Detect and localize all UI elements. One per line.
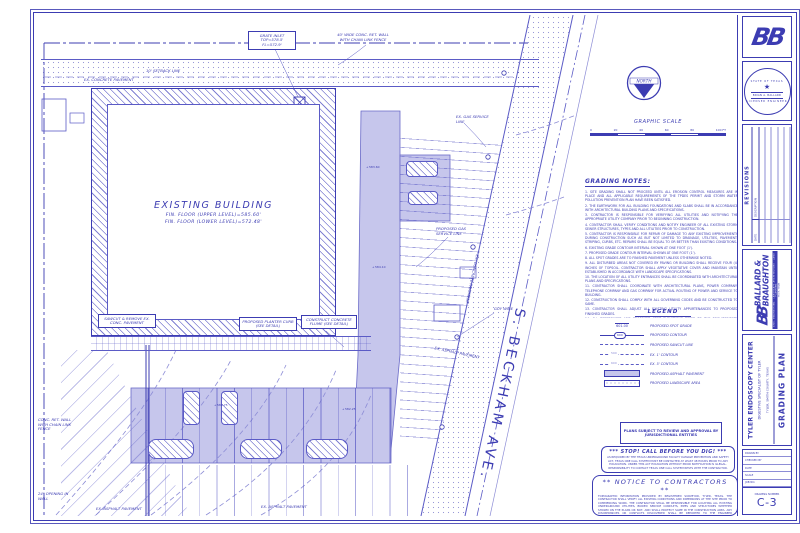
- building-name: EXISTING BUILDING: [154, 200, 273, 211]
- grading-note: 2. THE EARTHWORK FOR ALL BUILDING FOUNDA…: [585, 204, 738, 212]
- notice-to-contractors-box: ** NOTICE TO CONTRACTORS ** TOPOGRAPHIC …: [592, 475, 738, 516]
- grading-note: 6. EXISTING GRADE CONTOUR INTERVAL SHOWN…: [585, 246, 738, 250]
- sawcut-line-symbol: [594, 344, 650, 345]
- hatched-stall: [221, 391, 238, 425]
- label-gas-prop: PROPOSED GAS SERVICE LINE: [436, 227, 470, 236]
- parking-island: [240, 439, 282, 459]
- grading-note: 10. THE LOCATION OF ALL UTILITY ENTRANCE…: [585, 275, 738, 283]
- call-before-you-dig-box: *** STOP! CALL BEFORE YOU DIG! *** AS RE…: [601, 446, 735, 473]
- project-box: TYLER ENDOSCOPY CENTER DIGESTIVE SPECIAL…: [742, 334, 792, 446]
- grading-note: 3. CONTRACTOR IS RESPONSIBLE FOR VERIFYI…: [585, 213, 738, 221]
- ex-1ft-contour-symbol: 590: [594, 354, 650, 355]
- sheet-title: GRADING PLAN: [778, 352, 787, 428]
- firm-title: BB BALLARD & BRAUGHTON CIVIL ENGINEERING…: [744, 251, 791, 329]
- firm-address: TYLER, TEXAS: [779, 251, 781, 329]
- callout-flume: CONSTRUCT CONCRETE FLUME (SEE DETAIL): [301, 315, 357, 329]
- legend-title: LEGEND: [635, 309, 691, 317]
- label-ex-asphalt: EX. ASPHALT PAVEMENT: [96, 507, 142, 512]
- firm-title-box: BB BALLARD & BRAUGHTON CIVIL ENGINEERING…: [742, 249, 792, 331]
- stop-body: AS REQUIRED BY THE TEXAS UNDERGROUND FAC…: [607, 456, 729, 470]
- sheet-border: EXISTING BUILDING FIN. FLOOR (UPPER LEVE…: [33, 12, 797, 521]
- jurisdiction-note: PLANS SUBJECT TO REVIEW AND APPROVAL BY …: [620, 422, 722, 444]
- firm-logo-small: BB: [753, 307, 771, 327]
- revisions-box: REVISIONS DATE DESCRIPTION: [742, 124, 792, 246]
- revision-row: [784, 127, 790, 243]
- existing-building-label: EXISTING BUILDING FIN. FLOOR (UPPER LEVE…: [107, 104, 320, 320]
- info-field: SCALE: [743, 472, 791, 479]
- label-ret-wall-left: CONC. RET. WALL WITH CHAIN LINK FENCE: [38, 418, 76, 432]
- drawing-number-box: DRAWING NUMBER C-3: [743, 488, 791, 514]
- graphic-scale: GRAPHIC SCALE 020406080100 FT: [588, 119, 728, 136]
- proposed-contour-symbol: 600: [594, 335, 650, 336]
- graphic-scale-ticks: 020406080100 FT: [590, 128, 726, 132]
- grading-note: 4. CONTRACTOR SHALL VERIFY CONDITIONS AN…: [585, 223, 738, 231]
- info-field: DATE: [743, 465, 791, 472]
- legend-row: PROPOSED LANDSCAPE AREA: [594, 379, 732, 389]
- revisions-table: REVISIONS DATE DESCRIPTION: [744, 127, 791, 243]
- engineer-seal: STATE OF TEXAS ★ BRIAN A. BALLARD LICENS…: [744, 68, 791, 115]
- grading-note: 9. ALL DISTURBED AREAS NOT COVERED BY PA…: [585, 261, 738, 274]
- legend-row: PROPOSED SAWCUT LINE: [594, 340, 732, 350]
- scale-tick: 40: [639, 128, 643, 132]
- graphic-scale-bar: [590, 133, 726, 136]
- drawing-area: EXISTING BUILDING FIN. FLOOR (UPPER LEVE…: [36, 15, 738, 516]
- title-block-strip: BB STATE OF TEXAS ★ BRIAN A. BALLARD LIC…: [740, 15, 794, 516]
- spot-grade-symbol: 601.00: [594, 323, 650, 328]
- spot-grade: 580.75: [214, 403, 228, 407]
- building-ffe-upper: FIN. FLOOR (UPPER LEVEL)=585.60': [166, 213, 261, 218]
- grading-note: 7. PROPOSED GRADE CONTOUR INTERVAL SHOWN…: [585, 251, 738, 255]
- notice-title: ** NOTICE TO CONTRACTORS **: [598, 478, 732, 494]
- legend-row: 601.00 PROPOSED SPOT GRADE: [594, 321, 732, 331]
- callout-sawcut: SAWCUT & REMOVE EX. CONC. PAVEMENT: [98, 314, 156, 328]
- info-field: JOB NO.: [743, 480, 791, 487]
- spot-grade: 584.10: [372, 265, 386, 269]
- legend-row: PROPOSED ASPHALT PAVEMENT: [594, 369, 732, 379]
- label-gas-ex: EX. GAS SERVICE LINE: [456, 115, 490, 124]
- building-ffe-lower: FIN. FLOOR (LOWER LEVEL)=572.48': [165, 220, 262, 225]
- existing-building: EXISTING BUILDING FIN. FLOOR (UPPER LEVE…: [91, 88, 336, 336]
- grading-plan-sheet: { "title_block": { "logo_text": "BB", "s…: [0, 0, 800, 533]
- scale-tick: 100 FT: [716, 128, 726, 132]
- landscape-island: [408, 191, 438, 205]
- info-fields: DRAWN BYCHECKED BYDATESCALEJOB NO.: [743, 450, 791, 488]
- drawing-number: C-3: [757, 496, 777, 509]
- grading-note: 5. CONTRACTOR IS RESPONSIBLE FOR REPAIR …: [585, 232, 738, 245]
- revisions-col-date: DATE: [753, 219, 759, 243]
- notice-body: TOPOGRAPHIC INFORMATION PROVIDED BY REGI…: [598, 495, 732, 516]
- seal-star-icon: ★: [764, 84, 770, 91]
- parking-island: [306, 439, 348, 459]
- engineer-seal-box: STATE OF TEXAS ★ BRIAN A. BALLARD LICENS…: [742, 61, 792, 121]
- firm-logo-box: BB: [742, 16, 792, 58]
- label-wall-opening: 24" OPENING IN WALL: [38, 492, 72, 501]
- asphalt-symbol: [594, 370, 650, 377]
- grading-notes-body: 1. SITE GRADING SHALL NOT PROCEED UNTIL …: [585, 190, 738, 318]
- legend: LEGEND 601.00 PROPOSED SPOT GRADE 600 PR…: [588, 306, 738, 408]
- spot-grade: 582.25: [342, 407, 356, 411]
- grading-note: 11. CONTRACTOR SHALL COORDINATE WITH ARC…: [585, 284, 738, 297]
- north-arrow: NORTH: [626, 65, 662, 101]
- divider: [773, 336, 774, 444]
- parking-island: [148, 439, 194, 459]
- svg-text:NORTH: NORTH: [636, 79, 652, 84]
- scale-tick: 20: [614, 128, 618, 132]
- grading-notes-title: GRADING NOTES:: [585, 178, 650, 187]
- legend-row: 590 EX. 1' CONTOUR: [594, 350, 732, 360]
- graphic-scale-title: GRAPHIC SCALE: [588, 119, 728, 125]
- label-guy-wire: GUY WIRE: [494, 307, 513, 312]
- legend-row: 600 PROPOSED CONTOUR: [594, 331, 732, 341]
- scale-tick: 60: [665, 128, 669, 132]
- label-ex-asphalt: EX. ASPHALT PAVEMENT: [261, 505, 307, 510]
- info-box: DRAWN BYCHECKED BYDATESCALEJOB NO. DRAWI…: [742, 449, 792, 515]
- grading-note: 1. SITE GRADING SHALL NOT PROCEED UNTIL …: [585, 190, 738, 203]
- grading-note: 8. ALL SPOT GRADES ARE TO FINISHED PAVEM…: [585, 256, 738, 260]
- scale-tick: 80: [690, 128, 694, 132]
- hatched-stall: [183, 391, 200, 425]
- revisions-col-desc: DESCRIPTION: [753, 127, 759, 219]
- callout-planter-curb: PROPOSED PLANTER CURB (SEE DETAIL): [239, 317, 297, 331]
- spot-grade: 583.60: [366, 165, 380, 169]
- landscape-island: [406, 161, 438, 177]
- label-ex-concrete: EX. CONCRETE PAVEMENT: [84, 78, 134, 83]
- grading-notes: GRADING NOTES: 1. SITE GRADING SHALL NOT…: [585, 168, 738, 318]
- info-field: CHECKED BY: [743, 457, 791, 464]
- firm-logo: BB: [749, 23, 785, 51]
- info-field: DRAWN BY: [743, 450, 791, 457]
- label-setback: 10' SETBACK LINE: [146, 69, 180, 74]
- landscape-symbol: [594, 380, 650, 387]
- ex-5ft-contour-symbol: 600: [594, 364, 650, 365]
- label-ret-wall-top: 40' WIDE CONC. RET. WALL WITH CHAIN LINK…: [332, 33, 394, 42]
- scale-tick: 0: [590, 128, 592, 132]
- legend-row: 600 EX. 5' CONTOUR: [594, 359, 732, 369]
- sidewalk-grid: [91, 336, 371, 351]
- callout-grate-inlet: GRATE INLET TOP=578.5' FL=572.9': [248, 31, 296, 50]
- firm-tagline: CIVIL ENGINEERING · LANDSCAPE ARCHITECTU…: [773, 251, 778, 329]
- project-title: TYLER ENDOSCOPY CENTER DIGESTIVE SPECIAL…: [744, 336, 791, 444]
